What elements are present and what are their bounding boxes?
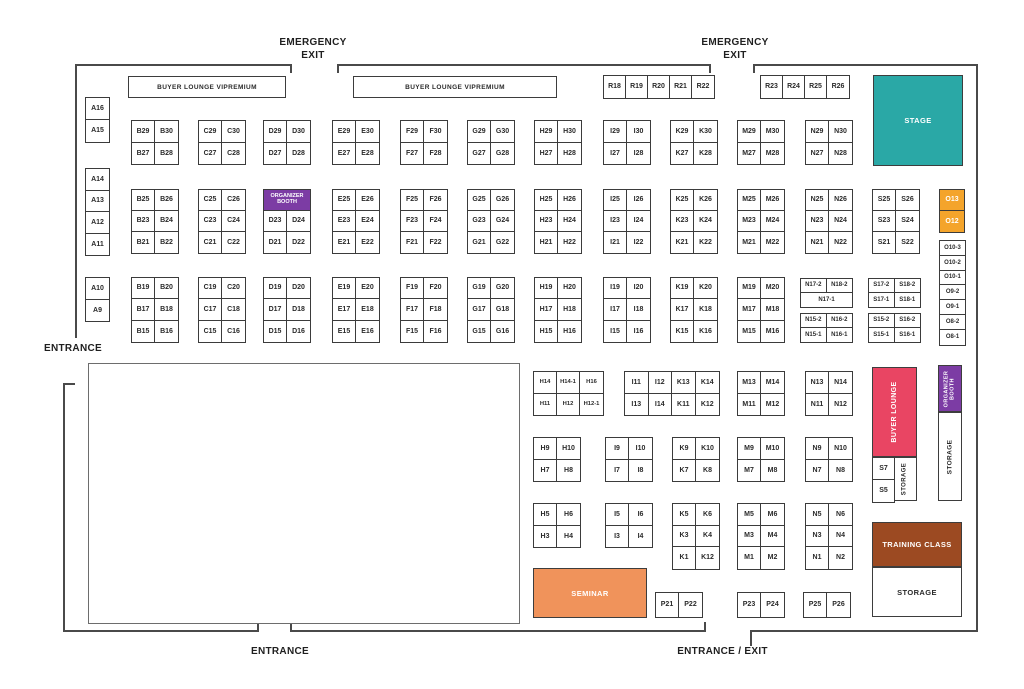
booth-g26: G26 <box>491 190 514 211</box>
booth-block-i29: I29I30I27I28 <box>603 120 651 165</box>
booth-h28: H28 <box>558 143 581 165</box>
booth-m19: M19 <box>738 278 761 299</box>
booth-block-r18: R18R19R20R21R22 <box>603 75 715 99</box>
booth-h14: H14 <box>534 372 557 394</box>
booth-i27: I27 <box>604 143 627 165</box>
booth-d20: D20 <box>287 278 310 299</box>
booth-b16: B16 <box>155 321 178 342</box>
booth-n23: N23 <box>806 211 829 232</box>
main-hall <box>88 363 520 624</box>
wall-segment <box>337 64 711 66</box>
booth-m7: M7 <box>738 460 761 482</box>
booth-r19: R19 <box>626 76 648 98</box>
booth-m9: M9 <box>738 438 761 460</box>
booth-b26: B26 <box>155 190 178 211</box>
wall-segment <box>976 64 978 632</box>
booth-m24: M24 <box>761 211 784 232</box>
booth-c25: C25 <box>199 190 222 211</box>
booth-e29: E29 <box>333 121 356 143</box>
booth-i20: I20 <box>627 278 650 299</box>
booth-f18: F18 <box>424 299 447 320</box>
booth-r23: R23 <box>761 76 783 98</box>
booth-e15: E15 <box>333 321 356 342</box>
booth-block-organizer-booth: ORGANIZER BOOTHD23D24D21D22 <box>263 189 311 254</box>
booth-m2: M2 <box>761 547 784 569</box>
booth-block-g29: G29G30G27G28 <box>467 120 515 165</box>
booth-f26: F26 <box>424 190 447 211</box>
booth-g24: G24 <box>491 211 514 232</box>
booth-n16-2: N16-2 <box>827 314 853 328</box>
booth-block-p23: P23P24 <box>737 592 785 618</box>
booth-block-k9: K9K10K7K8 <box>672 437 720 482</box>
wall-segment <box>750 630 978 632</box>
booth-block-k25: K25K26K23K24K21K22 <box>670 189 718 254</box>
booth-block-g25: G25G26G23G24G21G22 <box>467 189 515 254</box>
booth-i28: I28 <box>627 143 650 165</box>
wall-segment <box>63 383 65 632</box>
booth-s15-1: S15-1 <box>869 328 895 342</box>
booth-n11: N11 <box>806 394 829 416</box>
booth-h3: H3 <box>534 526 557 548</box>
booth-o8-2: O8-2 <box>940 315 965 330</box>
booth-n3: N3 <box>806 526 829 548</box>
buyer-lounge-label: BUYER LOUNGE <box>890 381 898 442</box>
booth-i22: I22 <box>627 232 650 253</box>
booth-f16: F16 <box>424 321 447 342</box>
label-emergency: EMERGENCY <box>268 37 358 48</box>
booth-i30: I30 <box>627 121 650 143</box>
booth-m4: M4 <box>761 526 784 548</box>
booth-s26: S26 <box>896 190 919 211</box>
booth-a12: A12 <box>86 212 109 234</box>
booth-f17: F17 <box>401 299 424 320</box>
booth-o9-2: O9-2 <box>940 285 965 300</box>
booth-block-m25: M25M26M23M24M21M22 <box>737 189 785 254</box>
booth-block-h9: H9H10H7H8 <box>533 437 581 482</box>
booth-c28: C28 <box>222 143 245 165</box>
label-exit: EXIT <box>690 50 780 61</box>
booth-block-b19: B19B20B17B18B15B16 <box>131 277 179 343</box>
booth-n13: N13 <box>806 372 829 394</box>
booth-n8: N8 <box>829 460 852 482</box>
booth-s7: S7 <box>873 458 894 480</box>
booth-o10-3: O10-3 <box>940 241 965 256</box>
booth-block-a16: A16A15 <box>85 97 110 143</box>
booth-i13: I13 <box>625 394 649 416</box>
booth-m26: M26 <box>761 190 784 211</box>
booth-block-m13: M13M14M11M12 <box>737 371 785 416</box>
training-class: TRAINING CLASS <box>872 522 962 567</box>
booth-s16-1: S16-1 <box>895 328 921 342</box>
buyer-lounge-vipremium-1: BUYER LOUNGE VIPREMIUM <box>128 76 286 98</box>
booth-o10-1: O10-1 <box>940 271 965 286</box>
label-entrance: ENTRANCE <box>235 646 325 657</box>
exhibition-floor-plan: ⚙ V VIMAF & VSIF EMERGENCYEXITEMERGENCYE… <box>0 0 1024 689</box>
booth-e24: E24 <box>356 211 379 232</box>
booth-d22: D22 <box>287 232 310 253</box>
booth-block-s7: S7S5 <box>872 457 895 503</box>
booth-k15: K15 <box>671 321 694 342</box>
booth-g25: G25 <box>468 190 491 211</box>
booth-b27: B27 <box>132 143 155 165</box>
booth-r20: R20 <box>648 76 670 98</box>
booth-block-c29: C29C30C27C28 <box>198 120 246 165</box>
booth-e20: E20 <box>356 278 379 299</box>
booth-f15: F15 <box>401 321 424 342</box>
label-emergency: EMERGENCY <box>690 37 780 48</box>
stage: STAGE <box>873 75 963 166</box>
booth-n17-1: N17-1 <box>801 293 852 307</box>
booth-g17: G17 <box>468 299 491 320</box>
booth-g15: G15 <box>468 321 491 342</box>
booth-g28: G28 <box>491 143 514 165</box>
booth-block-d29: D29D30D27D28 <box>263 120 311 165</box>
booth-m14: M14 <box>761 372 784 394</box>
booth-block-d19: D19D20D17D18D15D16 <box>263 277 311 343</box>
booth-block-n25: N25N26N23N24N21N22 <box>805 189 853 254</box>
storage-right-label: STORAGE <box>946 439 953 474</box>
booth-i19: I19 <box>604 278 627 299</box>
booth-block-n29: N29N30N27N28 <box>805 120 853 165</box>
booth-b17: B17 <box>132 299 155 320</box>
booth-i12: I12 <box>649 372 673 394</box>
booth-k19: K19 <box>671 278 694 299</box>
booth-n24: N24 <box>829 211 852 232</box>
booth-d27: D27 <box>264 143 287 165</box>
booth-n25: N25 <box>806 190 829 211</box>
booth-s22: S22 <box>896 232 919 253</box>
booth-block-i5: I5I6I3I4 <box>605 503 653 548</box>
booth-d23: D23 <box>264 211 287 232</box>
booth-m16: M16 <box>761 321 784 342</box>
booth-k9: K9 <box>673 438 696 460</box>
booth-block-c25: C25C26C23C24C21C22 <box>198 189 246 254</box>
booth-e23: E23 <box>333 211 356 232</box>
booth-c23: C23 <box>199 211 222 232</box>
booth-b22: B22 <box>155 232 178 253</box>
booth-c17: C17 <box>199 299 222 320</box>
booth-b29: B29 <box>132 121 155 143</box>
booth-n6: N6 <box>829 504 852 526</box>
booth-m10: M10 <box>761 438 784 460</box>
booth-d15: D15 <box>264 321 287 342</box>
booth-i15: I15 <box>604 321 627 342</box>
booth-h16: H16 <box>558 321 581 342</box>
booth-a15: A15 <box>86 120 109 142</box>
booth-i5: I5 <box>606 504 629 526</box>
booth-m1: M1 <box>738 547 761 569</box>
booth-block-n17-2: N17-2N18-2N17-1 <box>800 278 853 308</box>
booth-block-c19: C19C20C17C18C15C16 <box>198 277 246 343</box>
booth-block-r23: R23R24R25R26 <box>760 75 850 99</box>
booth-block-b29: B29B30B27B28 <box>131 120 179 165</box>
booth-b15: B15 <box>132 321 155 342</box>
booth-i18: I18 <box>627 299 650 320</box>
booth-h4: H4 <box>557 526 580 548</box>
booth-a11: A11 <box>86 234 109 256</box>
booth-o10-2: O10-2 <box>940 256 965 271</box>
booth-m15: M15 <box>738 321 761 342</box>
booth-m27: M27 <box>738 143 761 165</box>
booth-c19: C19 <box>199 278 222 299</box>
booth-b18: B18 <box>155 299 178 320</box>
booth-r22: R22 <box>692 76 714 98</box>
booth-i17: I17 <box>604 299 627 320</box>
booth-c27: C27 <box>199 143 222 165</box>
booth-block-n15-2: N15-2N16-2N15-1N16-1 <box>800 313 853 343</box>
storage-bottom: STORAGE <box>872 567 962 617</box>
booth-h14-1: H14-1 <box>557 372 580 394</box>
booth-b21: B21 <box>132 232 155 253</box>
booth-block-s15-2: S15-2S16-2S15-1S16-1 <box>868 313 921 343</box>
booth-s18-1: S18-1 <box>895 293 921 307</box>
booth-k18: K18 <box>694 299 717 320</box>
booth-p25: P25 <box>804 593 827 617</box>
booth-n10: N10 <box>829 438 852 460</box>
booth-block-g19: G19G20G17G18G15G16 <box>467 277 515 343</box>
booth-block-i19: I19I20I17I18I15I16 <box>603 277 651 343</box>
booth-k17: K17 <box>671 299 694 320</box>
booth-h10: H10 <box>557 438 580 460</box>
booth-m5: M5 <box>738 504 761 526</box>
booth-k27: K27 <box>671 143 694 165</box>
storage-small: STORAGE <box>893 457 917 501</box>
booth-r24: R24 <box>783 76 805 98</box>
booth-h24: H24 <box>558 211 581 232</box>
wall-segment <box>337 64 339 73</box>
booth-g30: G30 <box>491 121 514 143</box>
booth-block-e19: E19E20E17E18E15E16 <box>332 277 380 343</box>
booth-block-n5: N5N6N3N4N1N2 <box>805 503 853 570</box>
booth-n30: N30 <box>829 121 852 143</box>
booth-f30: F30 <box>424 121 447 143</box>
booth-p21: P21 <box>656 593 679 617</box>
booth-i25: I25 <box>604 190 627 211</box>
buyer-lounge-vipremium-2: BUYER LOUNGE VIPREMIUM <box>353 76 557 98</box>
booth-g19: G19 <box>468 278 491 299</box>
booth-i16: I16 <box>627 321 650 342</box>
booth-o9-1: O9-1 <box>940 300 965 315</box>
booth-block-k5: K5K6K3K4K1K12 <box>672 503 720 570</box>
booth-n4: N4 <box>829 526 852 548</box>
booth-k21: K21 <box>671 232 694 253</box>
booth-b28: B28 <box>155 143 178 165</box>
booth-f29: F29 <box>401 121 424 143</box>
booth-k29: K29 <box>671 121 694 143</box>
booth-f20: F20 <box>424 278 447 299</box>
booth-k5: K5 <box>673 504 696 526</box>
booth-d29: D29 <box>264 121 287 143</box>
booth-n27: N27 <box>806 143 829 165</box>
booth-k30: K30 <box>694 121 717 143</box>
wall-segment <box>63 630 259 632</box>
booth-g22: G22 <box>491 232 514 253</box>
booth-o8-1: O8-1 <box>940 330 965 345</box>
organizer-booth-right-label: ORGANIZER BOOTH <box>944 367 957 410</box>
booth-block-h14: H14H14-1H16H11H12H12-1 <box>533 371 604 416</box>
booth-e19: E19 <box>333 278 356 299</box>
booth-s15-2: S15-2 <box>869 314 895 328</box>
booth-b30: B30 <box>155 121 178 143</box>
booth-n1: N1 <box>806 547 829 569</box>
booth-s17-1: S17-1 <box>869 293 895 307</box>
booth-m23: M23 <box>738 211 761 232</box>
wall-segment <box>704 622 706 632</box>
booth-k24: K24 <box>694 211 717 232</box>
booth-n28: N28 <box>829 143 852 165</box>
booth-f24: F24 <box>424 211 447 232</box>
booth-block-k19: K19K20K17K18K15K16 <box>670 277 718 343</box>
booth-e25: E25 <box>333 190 356 211</box>
booth-e28: E28 <box>356 143 379 165</box>
booth-f25: F25 <box>401 190 424 211</box>
booth-n7: N7 <box>806 460 829 482</box>
booth-i10: I10 <box>629 438 652 460</box>
buyer-lounge: BUYER LOUNGE <box>872 367 917 457</box>
booth-n21: N21 <box>806 232 829 253</box>
organizer-booth-right: ORGANIZER BOOTH <box>938 365 962 412</box>
booth-m22: M22 <box>761 232 784 253</box>
booth-s21: S21 <box>873 232 896 253</box>
booth-b23: B23 <box>132 211 155 232</box>
booth-m18: M18 <box>761 299 784 320</box>
booth-d24: D24 <box>287 211 310 232</box>
booth-d28: D28 <box>287 143 310 165</box>
booth-m6: M6 <box>761 504 784 526</box>
booth-m20: M20 <box>761 278 784 299</box>
booth-a14: A14 <box>86 169 109 191</box>
booth-i23: I23 <box>604 211 627 232</box>
booth-d16: D16 <box>287 321 310 342</box>
booth-k12: K12 <box>696 394 720 416</box>
booth-block-m19: M19M20M17M18M15M16 <box>737 277 785 343</box>
booth-h12-1: H12-1 <box>580 394 603 416</box>
booth-r18: R18 <box>604 76 626 98</box>
booth-k16: K16 <box>694 321 717 342</box>
booth-block-a14: A14A13A12A11 <box>85 168 110 256</box>
booth-n18-2: N18-2 <box>827 279 853 293</box>
booth-g23: G23 <box>468 211 491 232</box>
booth-block-i9: I9I10I7I8 <box>605 437 653 482</box>
booth-f19: F19 <box>401 278 424 299</box>
booth-i3: I3 <box>606 526 629 548</box>
booth-h27: H27 <box>535 143 558 165</box>
booth-m12: M12 <box>761 394 784 416</box>
booth-b25: B25 <box>132 190 155 211</box>
booth-s17-2: S17-2 <box>869 279 895 293</box>
wall-segment <box>290 630 706 632</box>
booth-h29: H29 <box>535 121 558 143</box>
wall-segment <box>750 630 752 646</box>
booth-n9: N9 <box>806 438 829 460</box>
booth-block-m5: M5M6M3M4M1M2 <box>737 503 785 570</box>
booth-m29: M29 <box>738 121 761 143</box>
booth-d30: D30 <box>287 121 310 143</box>
booth-block-f19: F19F20F17F18F15F16 <box>400 277 448 343</box>
booth-a9: A9 <box>86 300 109 322</box>
booth-m11: M11 <box>738 394 761 416</box>
booth-i7: I7 <box>606 460 629 482</box>
booth-e22: E22 <box>356 232 379 253</box>
booth-e18: E18 <box>356 299 379 320</box>
booth-block-h29: H29H30H27H28 <box>534 120 582 165</box>
booth-d19: D19 <box>264 278 287 299</box>
booth-block-m9: M9M10M7M8 <box>737 437 785 482</box>
booth-k28: K28 <box>694 143 717 165</box>
booth-h25: H25 <box>535 190 558 211</box>
booth-s5: S5 <box>873 480 894 502</box>
booth-n5: N5 <box>806 504 829 526</box>
booth-f23: F23 <box>401 211 424 232</box>
booth-k3: K3 <box>673 526 696 548</box>
booth-n12: N12 <box>829 394 852 416</box>
booth-h26: H26 <box>558 190 581 211</box>
booth-n16-1: N16-1 <box>827 328 853 342</box>
booth-i26: I26 <box>627 190 650 211</box>
booth-block-h19: H19H20H17H18H15H16 <box>534 277 582 343</box>
booth-c18: C18 <box>222 299 245 320</box>
booth-block-f25: F25F26F23F24F21F22 <box>400 189 448 254</box>
wall-segment <box>75 64 77 338</box>
booth-h23: H23 <box>535 211 558 232</box>
booth-block-n9: N9N10N7N8 <box>805 437 853 482</box>
booth-h19: H19 <box>535 278 558 299</box>
booth-r26: R26 <box>827 76 849 98</box>
booth-c16: C16 <box>222 321 245 342</box>
booth-c29: C29 <box>199 121 222 143</box>
booth-k11: K11 <box>672 394 696 416</box>
booth-h5: H5 <box>534 504 557 526</box>
booth-h8: H8 <box>557 460 580 482</box>
booth-p26: P26 <box>827 593 850 617</box>
booth-c20: C20 <box>222 278 245 299</box>
booth-e16: E16 <box>356 321 379 342</box>
booth-block-o13: O13O12 <box>939 189 965 233</box>
label-entrance-exit: ENTRANCE / EXIT <box>650 646 795 657</box>
booth-m28: M28 <box>761 143 784 165</box>
booth-k25: K25 <box>671 190 694 211</box>
seminar: SEMINAR <box>533 568 647 618</box>
booth-e17: E17 <box>333 299 356 320</box>
booth-n2: N2 <box>829 547 852 569</box>
booth-c22: C22 <box>222 232 245 253</box>
booth-k1: K1 <box>673 547 696 569</box>
booth-o12: O12 <box>940 211 964 232</box>
booth-k13: K13 <box>672 372 696 394</box>
storage-small-label: STORAGE <box>902 463 909 495</box>
booth-n17-2: N17-2 <box>801 279 827 293</box>
booth-c26: C26 <box>222 190 245 211</box>
booth-n14: N14 <box>829 372 852 394</box>
booth-k6: K6 <box>696 504 719 526</box>
booth-i4: I4 <box>629 526 652 548</box>
booth-o13: O13 <box>940 190 964 211</box>
booth-block-f29: F29F30F27F28 <box>400 120 448 165</box>
booth-k4: K4 <box>696 526 719 548</box>
booth-i29: I29 <box>604 121 627 143</box>
booth-block-p25: P25P26 <box>803 592 851 618</box>
booth-c21: C21 <box>199 232 222 253</box>
booth-c30: C30 <box>222 121 245 143</box>
booth-h30: H30 <box>558 121 581 143</box>
booth-f21: F21 <box>401 232 424 253</box>
booth-m13: M13 <box>738 372 761 394</box>
storage-right: STORAGE <box>938 412 962 501</box>
booth-i21: I21 <box>604 232 627 253</box>
booth-g21: G21 <box>468 232 491 253</box>
booth-k26: K26 <box>694 190 717 211</box>
booth-h12: H12 <box>557 394 580 416</box>
